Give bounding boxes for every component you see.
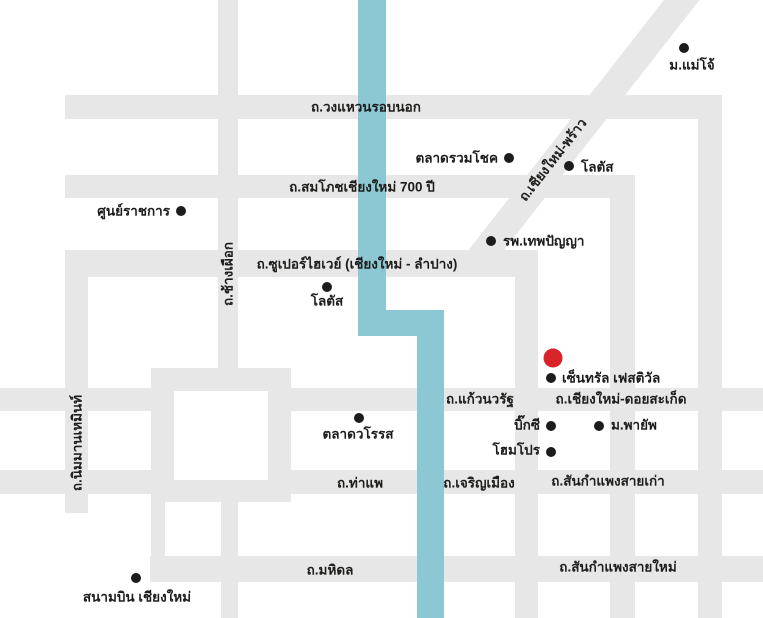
road-label-tha-phae: ถ.ท่าแพ [337,476,383,490]
poi-label-maejo-university: ม.แม่โจ้ [669,58,714,72]
poi-label-theppanya-hospital: รพ.เทพปัญญา [503,234,584,248]
poi-dot-warorot-market [354,413,364,423]
poi-label-central-festival: เซ็นทรัล เฟสติวัล [562,371,660,385]
river-north [358,0,386,336]
poi-dot-government-center [176,206,186,216]
road-segment-tha-phae-west [0,470,174,494]
poi-label-big-c: บิ๊กซี [514,418,540,432]
road-label-nimmanhaemin: ถ.นิมมานเหมินท์ [70,395,84,491]
road-label-wong-waen-rob-nok: ถ.วงแหวนรอบนอก [311,100,421,114]
poi-label-chiangmai-airport: สนามบิน เชียงใหม่ [83,590,191,604]
poi-label-ruamchok-market: ตลาดรวมโชค [415,151,498,165]
poi-dot-lotus-south [322,282,332,292]
poi-dot-big-c [546,421,556,431]
poi-label-lotus-north: โลตัส [581,160,614,174]
road-label-sankamphaeng-new: ถ.สันกำแพงสายใหม่ [559,560,676,574]
road-segment-chang-phueak [218,0,238,391]
poi-dot-homepro [546,447,556,457]
road-segment-doi-saket [268,388,763,411]
poi-highlight-dot-central-festival [544,349,563,368]
poi-dot-lotus-north [564,161,574,171]
road-label-kaew-nawarat: ถ.แก้วนวรัฐ [446,392,514,406]
road-segment-moat-stub-southwest [151,495,165,560]
road-segment-chiangmai-phrao-diagonal [465,0,703,272]
poi-label-warorot-market: ตลาดวโรรส [323,427,394,441]
road-segment-moat-square-east [268,368,291,502]
poi-label-homepro: โฮมโปร [493,443,540,457]
poi-dot-payap-university [594,421,604,431]
poi-label-lotus-south: โลตัส [311,294,344,308]
poi-dot-ruamchok-market [504,153,514,163]
road-label-superhighway: ถ.ซูเปอร์ไฮเวย์ (เชียงใหม่ - ลำปาง) [257,257,458,271]
road-label-somphot-700pi: ถ.สมโภชเชียงใหม่ 700 ปี [289,180,435,194]
poi-dot-chiangmai-airport [131,573,141,583]
road-label-mahidol: ถ.มหิดล [307,563,354,577]
poi-dot-maejo-university [679,43,689,53]
road-segment-moat-stub-airport-line [221,495,238,618]
poi-label-government-center: ศูนย์ราชการ [97,204,170,218]
river-south [417,310,444,618]
poi-label-payap-university: ม.พายัพ [611,418,657,432]
road-label-chang-phueak: ถ.ช้างเผือก [221,242,235,306]
chiangmai-area-map: ถ.วงแหวนรอบนอกถ.สมโภชเชียงใหม่ 700 ปีถ.ซ… [0,0,763,618]
poi-dot-theppanya-hospital [486,236,496,246]
road-segment-moat-square-west [151,368,174,502]
poi-dot-central-festival [546,373,556,383]
road-label-charoen-mueang: ถ.เจริญเมือง [443,476,514,490]
road-segment-kaew-nawarat-west [0,388,174,411]
road-segment-outer-ring-east [698,95,722,618]
road-label-chiangmai-doi-saket: ถ.เชียงใหม่-ดอยสะเก็ด [556,392,687,406]
road-label-sankamphaeng-old: ถ.สันกำแพงสายเก่า [551,474,664,488]
